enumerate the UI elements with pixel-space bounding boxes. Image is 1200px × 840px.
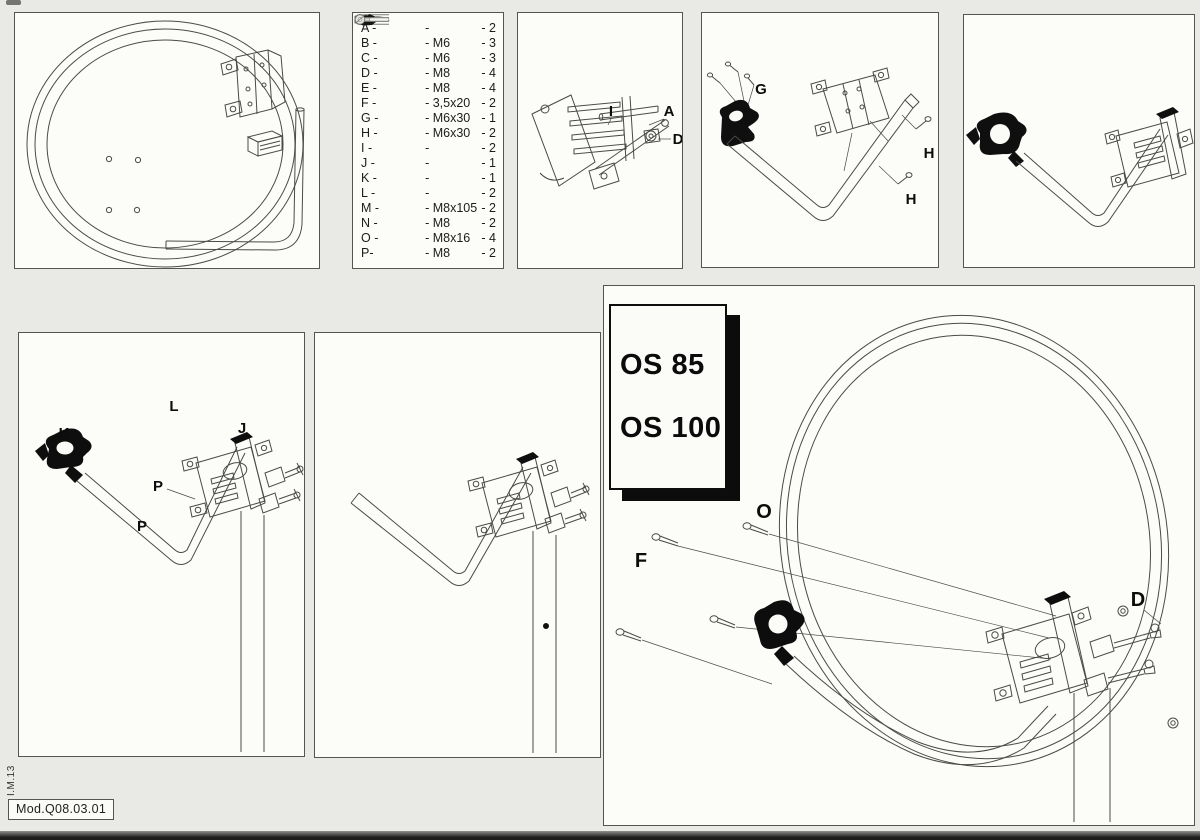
model-name-1: OS 85 <box>620 349 725 382</box>
pole-drawing <box>241 511 264 752</box>
part-qty: - 2 <box>481 216 498 230</box>
part-letter: E - <box>361 81 384 95</box>
parts-list-row: P- - M8 - 2 <box>361 246 498 260</box>
part-size: - 3,5x20 <box>425 96 481 110</box>
part-qty: - 2 <box>481 186 498 200</box>
label-I: I <box>609 103 613 120</box>
scan-edge-bar <box>0 831 1200 840</box>
clamp-block-drawing <box>248 131 282 156</box>
pole-clamp-bolts-drawing <box>259 463 303 513</box>
panel-step-bracket-arm: I A D <box>517 12 683 269</box>
mast-bracket-drawing <box>468 452 558 537</box>
part-qty: - 4 <box>481 81 498 95</box>
part-qty: - 2 <box>481 126 498 140</box>
panel-step-pole-mounted <box>314 332 601 758</box>
bracket-plate-drawing <box>532 95 634 189</box>
part-letter: B - <box>361 36 384 50</box>
parts-list-row: D - - M8 - 4 <box>361 66 498 80</box>
part-size: - M8 <box>425 66 481 80</box>
feed-arm-drawing <box>166 108 304 250</box>
parts-list-row: G - - M6x30 - 1 <box>361 111 498 125</box>
dish-bracket-drawing <box>1105 107 1193 187</box>
part-letter: N - <box>361 216 384 230</box>
part-qty: - 1 <box>481 171 498 185</box>
part-size: - M8 <box>425 216 481 230</box>
part-letter: C - <box>361 51 384 65</box>
mast-bracket-drawing <box>986 591 1091 703</box>
part-qty: - 3 <box>481 36 498 50</box>
step2-drawing: G H H <box>702 13 938 267</box>
model-name-2: OS 100 <box>620 412 725 445</box>
part-size: - M8x16 <box>425 231 481 245</box>
part-letter: G - <box>361 111 384 125</box>
alignment-lines <box>642 534 1056 684</box>
parts-list-row: J - - - 1 <box>361 156 498 170</box>
doc-code-box: Mod.Q08.03.01 <box>8 799 114 820</box>
scanned-instruction-page: A - - - 2 B - - M6 - 3 C - - M6 - 3 D - … <box>0 0 1200 840</box>
part-size: - M6x30 <box>425 111 481 125</box>
pole-drawing <box>1074 688 1110 822</box>
panel-box-contents <box>14 12 320 269</box>
label-P-upper: P <box>153 478 163 495</box>
label-D: D <box>1131 589 1145 611</box>
step5-drawing <box>315 333 600 757</box>
step3-drawing <box>964 15 1194 267</box>
parts-list-row: F - - 3,5x20 - 2 <box>361 96 498 110</box>
part-letter: I - <box>361 141 384 155</box>
part-size: - M8 <box>425 81 481 95</box>
part-qty: - 2 <box>481 246 498 260</box>
part-size: - <box>425 21 481 35</box>
part-letter: K - <box>361 171 384 185</box>
step4-drawing: K L J P P <box>19 333 304 756</box>
parts-list-row: H - - M6x30 - 2 <box>361 126 498 140</box>
pole-clamp-bolts-drawing <box>545 483 589 533</box>
pole-drawing <box>533 531 556 753</box>
part-letter: H - <box>361 126 384 140</box>
part-qty: - 2 <box>481 141 498 155</box>
dish-drawing <box>27 21 303 267</box>
part-qty: - 1 <box>481 111 498 125</box>
part-letter: J - <box>361 156 384 170</box>
label-P-lower: P <box>137 518 147 535</box>
label-G: G <box>755 81 767 98</box>
label-H-upper: H <box>924 145 935 162</box>
panel-step-assembled-arm <box>963 14 1195 268</box>
part-qty: - 1 <box>481 156 498 170</box>
leader-line <box>167 489 195 499</box>
label-H-lower: H <box>906 191 917 208</box>
parts-list: A - - - 2 B - - M6 - 3 C - - M6 - 3 D - … <box>353 13 503 268</box>
step1-drawing: I A D <box>518 13 682 268</box>
label-D: D <box>673 131 682 148</box>
parts-list-row: C - - M6 - 3 <box>361 51 498 65</box>
parts-list-row: O - - M8x16 - 4 <box>361 231 498 245</box>
feed-arm-drawing <box>77 447 245 565</box>
mast-bracket-drawing <box>182 432 272 517</box>
part-size: - M8 <box>425 246 481 260</box>
model-title-box: OS 85 OS 100 <box>609 304 727 490</box>
part-letter: D - <box>361 66 384 80</box>
part-letter: F - <box>361 96 384 110</box>
part-letter: M - <box>361 201 384 215</box>
label-K: K <box>59 425 70 442</box>
part-qty: - 4 <box>481 231 498 245</box>
part-qty: - 4 <box>481 66 498 80</box>
parts-list-row: E - - M8 - 4 <box>361 81 498 95</box>
scan-smudge <box>6 0 21 5</box>
part-letter: O - <box>361 231 384 245</box>
part-size: - M8x105 <box>425 201 481 215</box>
parts-list-row: I - - - 2 <box>361 141 498 155</box>
part-letter: P- <box>361 246 384 260</box>
part-size: - M6 <box>425 36 481 50</box>
parts-list-row: K - - - 1 <box>361 171 498 185</box>
part-qty: - 2 <box>481 201 498 215</box>
part-size: - M6 <box>425 51 481 65</box>
feed-arm-drawing <box>1016 129 1168 227</box>
label-A: A <box>664 103 675 120</box>
nuts-drawing <box>1118 606 1178 728</box>
parts-list-row: M - - M8x105 - 2 <box>361 201 498 215</box>
mounting-screws-drawing <box>616 523 768 641</box>
feed-arm-drawing <box>786 656 1056 765</box>
small-screws-drawing <box>707 62 754 109</box>
part-size: - <box>425 141 481 155</box>
lnb-clamp-drawing <box>966 113 1027 167</box>
panel-final-assembly: OS 85 OS 100 <box>603 285 1195 826</box>
part-size: - M6x30 <box>425 126 481 140</box>
parts-list-row: B - - M6 - 3 <box>361 36 498 50</box>
part-qty: - 3 <box>481 51 498 65</box>
part-size: - <box>425 156 481 170</box>
feed-arm-drawing <box>351 467 531 586</box>
box-contents-drawing <box>15 13 319 268</box>
label-F: F <box>635 550 647 572</box>
part-size: - <box>425 186 481 200</box>
part-qty: - 2 <box>481 21 498 35</box>
parts-list-row: L - - - 2 <box>361 186 498 200</box>
label-J: J <box>238 420 246 437</box>
panel-step-pole-mount: K L J P P <box>18 332 305 757</box>
label-L: L <box>169 398 178 415</box>
parts-list-row: N - - M8 - 2 <box>361 216 498 230</box>
label-O: O <box>756 501 772 523</box>
part-qty: - 2 <box>481 96 498 110</box>
part-size: - <box>425 171 481 185</box>
panel-step-arm-clamp: G H H <box>701 12 939 268</box>
part-letter: L - <box>361 186 384 200</box>
margin-code: I.M.13 <box>6 756 17 796</box>
panel-parts-list: A - - - 2 B - - M6 - 3 C - - M6 - 3 D - … <box>352 12 504 269</box>
doc-code: Mod.Q08.03.01 <box>16 802 106 816</box>
